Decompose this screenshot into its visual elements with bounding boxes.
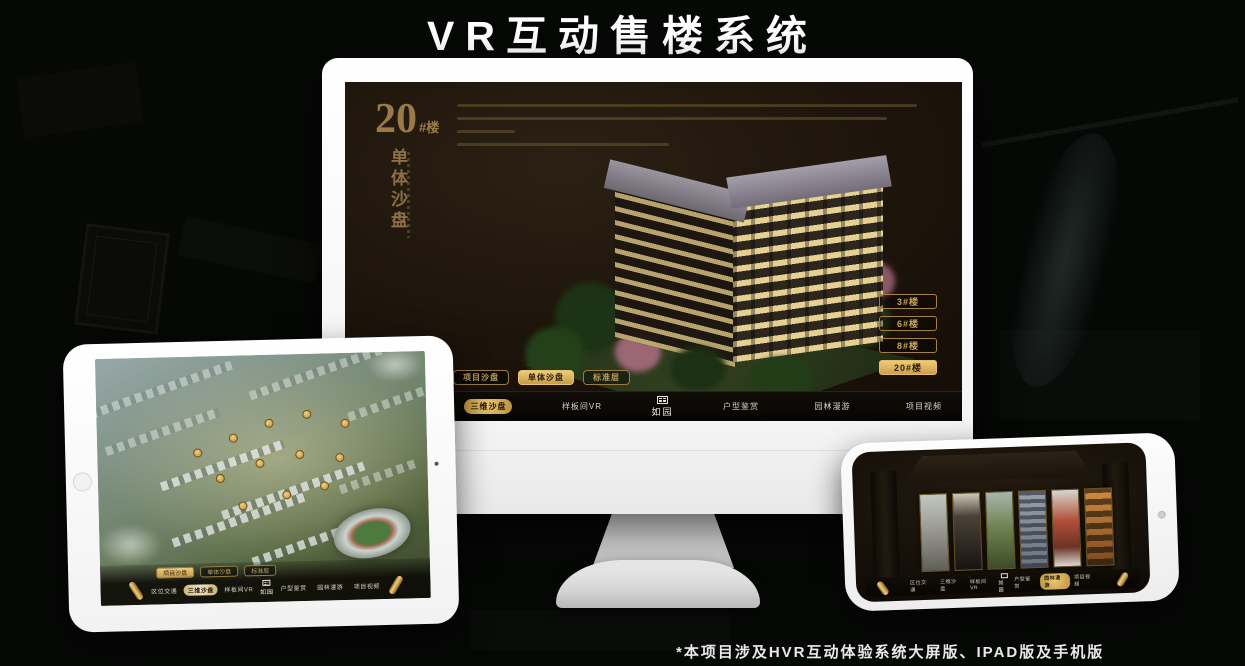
- floor-button-20[interactable]: 20#楼: [879, 360, 937, 375]
- phone-brand-logo-text: 如园: [998, 579, 1010, 593]
- phone-brand-logo: 如园: [998, 573, 1011, 593]
- background-river: [990, 123, 1140, 397]
- tablet-brand-seal-icon: [263, 580, 271, 586]
- floor-headline-number: 20: [375, 96, 417, 142]
- tablet-nav-location[interactable]: 区位交通: [147, 584, 181, 596]
- tablet-screen: 项目沙盘 单体沙盘 标准层 区位交通 三维沙盘 样板间VR 如园 户型鉴赏 园林…: [95, 351, 431, 606]
- floor-button-6[interactable]: 6#楼: [879, 316, 937, 331]
- background-plaque: [74, 223, 170, 334]
- footnote-text: *本项目涉及HVR互动体验系统大屏版、IPAD版及手机版: [676, 641, 1104, 662]
- phone-navbar: 区位交通 三维沙盘 样板间VR 如园 户型鉴赏 园林漫游 项目视频: [866, 570, 1140, 598]
- tablet-home-button[interactable]: [73, 472, 92, 491]
- tablet-brand-logo: 如园: [260, 580, 274, 596]
- nav-item-showroom-vr[interactable]: 样板间VR: [556, 399, 608, 414]
- gallery-panel-courtyard[interactable]: [919, 493, 950, 572]
- brand-logo: 如园: [652, 396, 674, 418]
- floor-button-8[interactable]: 8#楼: [879, 338, 937, 353]
- tab-standard-floor[interactable]: 标准层: [583, 370, 630, 385]
- phone-nav-showroom-vr[interactable]: 样板间VR: [966, 576, 999, 592]
- tablet-device: 项目沙盘 单体沙盘 标准层 区位交通 三维沙盘 样板间VR 如园 户型鉴赏 园林…: [63, 335, 460, 632]
- tab-project-sandbox[interactable]: 项目沙盘: [453, 370, 509, 385]
- gallery-panel-building[interactable]: [1018, 490, 1049, 569]
- floor-headline-suffix: #楼: [419, 120, 439, 135]
- gallery-panel-autumn[interactable]: [1051, 489, 1082, 568]
- tab-single-sandbox[interactable]: 单体沙盘: [518, 370, 574, 385]
- phone-screen: 区位交通 三维沙盘 样板间VR 如园 户型鉴赏 园林漫游 项目视频: [851, 442, 1150, 602]
- phone-device: 区位交通 三维沙盘 样板间VR 如园 户型鉴赏 园林漫游 项目视频: [840, 432, 1180, 612]
- monitor-stand-base: [556, 560, 760, 608]
- gallery-panel-landscape[interactable]: [985, 491, 1016, 570]
- brand-logo-text: 如园: [652, 405, 674, 418]
- tablet-tab-standard-floor[interactable]: 标准层: [244, 565, 276, 577]
- floor-headline: 20#楼: [375, 98, 439, 140]
- phone-scroll-left-icon[interactable]: [873, 577, 893, 597]
- phone-nav-location[interactable]: 区位交通: [906, 578, 936, 595]
- tablet-nav-3d-sandbox[interactable]: 三维沙盘: [184, 584, 218, 596]
- phone-nav-garden-roam[interactable]: 园林漫游: [1040, 573, 1070, 590]
- tablet-nav-floorplans[interactable]: 户型鉴赏: [276, 581, 310, 593]
- page-title: VR互动售楼系统: [0, 2, 1245, 62]
- tablet-scroll-left-icon[interactable]: [123, 578, 149, 605]
- tablet-nav-project-video[interactable]: 项目视频: [350, 580, 384, 592]
- tablet-nav-garden-roam[interactable]: 园林漫游: [313, 580, 347, 592]
- phone-bg-gate: [892, 450, 1107, 483]
- nav-item-garden-roam[interactable]: 园林漫游: [808, 399, 856, 414]
- nav-item-floorplans[interactable]: 户型鉴赏: [717, 399, 765, 414]
- stadium-rendering: [329, 501, 416, 566]
- phone-nav-floorplans[interactable]: 户型鉴赏: [1010, 574, 1040, 591]
- tablet-brand-logo-text: 如园: [260, 587, 274, 596]
- mode-tab-group: 项目沙盘 单体沙盘 标准层: [453, 370, 630, 385]
- tablet-tab-single-sandbox[interactable]: 单体沙盘: [200, 566, 238, 578]
- phone-nav-project-video[interactable]: 项目视频: [1070, 572, 1100, 589]
- gallery-panel-shelves[interactable]: [1084, 487, 1115, 566]
- tablet-camera-icon: [435, 462, 439, 466]
- building-front-facade: [733, 183, 883, 362]
- headline-english-caption: [407, 152, 410, 238]
- nav-item-project-video[interactable]: 项目视频: [900, 399, 948, 414]
- phone-scroll-right-icon[interactable]: [1113, 569, 1133, 589]
- phone-camera-icon: [1158, 511, 1166, 519]
- tablet-tab-project-sandbox[interactable]: 项目沙盘: [156, 567, 194, 579]
- phone-brand-seal-icon: [1001, 573, 1008, 578]
- floor-button-3[interactable]: 3#楼: [879, 294, 937, 309]
- phone-nav-3d-sandbox[interactable]: 三维沙盘: [936, 577, 966, 594]
- nav-item-3d-sandbox[interactable]: 三维沙盘: [464, 399, 512, 414]
- gallery-panel-interior-dark[interactable]: [952, 492, 983, 571]
- tablet-nav-showroom-vr[interactable]: 样板间VR: [220, 583, 257, 595]
- brand-seal-icon: [657, 396, 668, 404]
- scene-gallery: [919, 487, 1115, 572]
- floor-button-group: 3#楼 6#楼 8#楼 20#楼: [879, 294, 941, 382]
